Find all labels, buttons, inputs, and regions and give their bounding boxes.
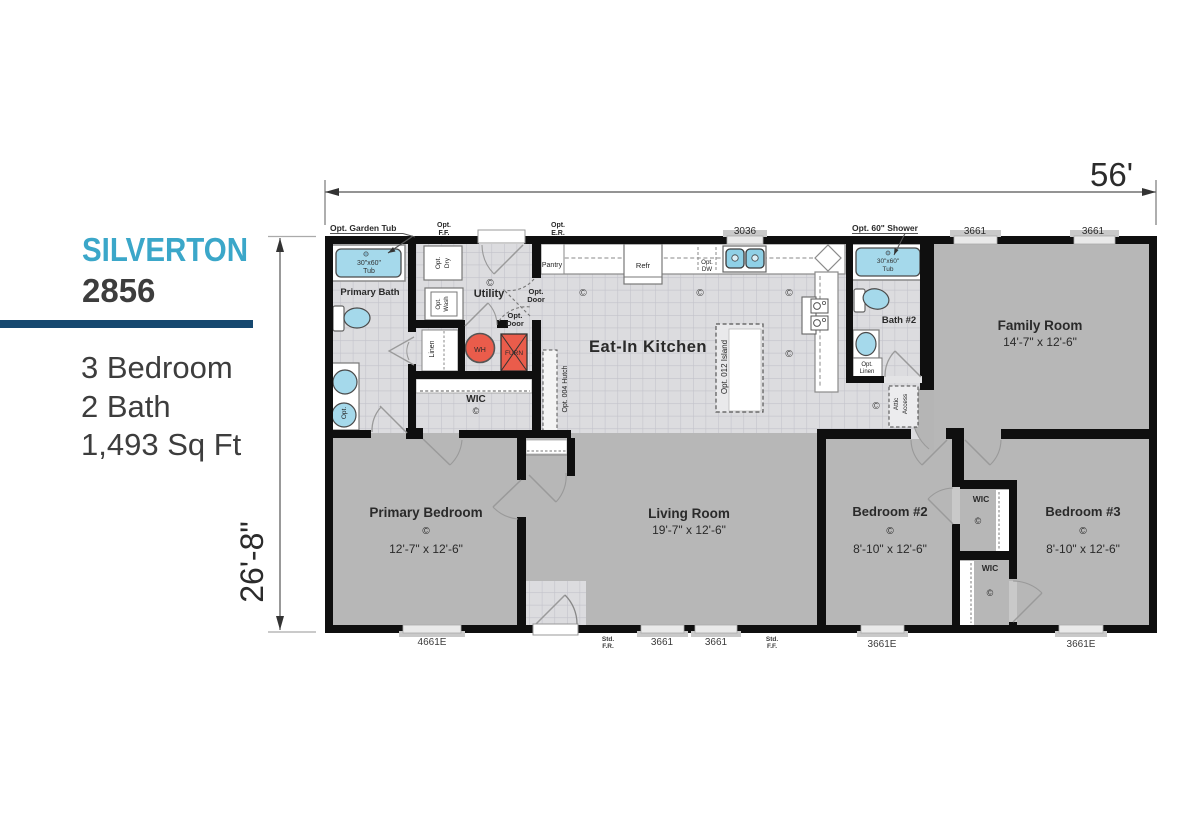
svg-text:3036: 3036 <box>734 226 757 237</box>
svg-text:Opt.: Opt. <box>341 407 348 419</box>
svg-text:8'-10" x 12'-6": 8'-10" x 12'-6" <box>853 542 927 556</box>
svg-text:30"x60": 30"x60" <box>877 258 900 265</box>
svg-text:E.R.: E.R. <box>551 230 565 237</box>
svg-text:Opt.: Opt. <box>435 257 442 269</box>
svg-text:Opt.: Opt. <box>551 222 565 229</box>
svg-text:14'-7" x 12'-6": 14'-7" x 12'-6" <box>1003 335 1077 349</box>
svg-text:Eat-In Kitchen: Eat-In Kitchen <box>589 338 707 356</box>
svg-text:Refr: Refr <box>636 261 651 270</box>
svg-text:Door: Door <box>506 319 524 328</box>
svg-text:Family Room: Family Room <box>998 318 1083 333</box>
svg-text:Utility: Utility <box>474 288 505 300</box>
svg-text:Opt. 60" Shower: Opt. 60" Shower <box>852 223 919 233</box>
svg-text:8'-10" x 12'-6": 8'-10" x 12'-6" <box>1046 542 1120 556</box>
svg-text:©: © <box>422 526 430 537</box>
svg-text:Opt. 012 Island: Opt. 012 Island <box>720 340 729 394</box>
svg-text:30"x60": 30"x60" <box>357 260 382 267</box>
svg-text:Wash: Wash <box>444 296 450 311</box>
svg-text:26'-8": 26'-8" <box>234 521 270 603</box>
svg-text:2856: 2856 <box>82 272 155 309</box>
svg-text:©: © <box>872 401 880 412</box>
svg-text:Opt.: Opt. <box>701 259 713 266</box>
svg-text:F.F.: F.F. <box>767 643 777 650</box>
svg-text:19'-7" x 12'-6": 19'-7" x 12'-6" <box>652 523 726 537</box>
svg-text:Opt. 004 Hutch: Opt. 004 Hutch <box>562 365 569 412</box>
svg-text:Linen: Linen <box>860 369 875 375</box>
svg-text:©: © <box>987 588 994 598</box>
svg-text:Dry: Dry <box>444 257 451 268</box>
svg-text:3661: 3661 <box>1082 226 1105 237</box>
svg-text:Std.: Std. <box>602 636 614 643</box>
svg-text:2 Bath: 2 Bath <box>81 389 171 424</box>
svg-text:56': 56' <box>1090 156 1133 193</box>
svg-text:Pantry: Pantry <box>542 262 563 269</box>
svg-text:Primary Bath: Primary Bath <box>340 287 399 298</box>
svg-text:1,493 Sq Ft: 1,493 Sq Ft <box>81 427 242 462</box>
svg-text:©: © <box>975 516 982 526</box>
svg-text:©: © <box>1079 526 1087 537</box>
svg-text:Opt.: Opt. <box>437 222 451 229</box>
svg-text:©: © <box>696 288 704 299</box>
svg-text:©: © <box>486 278 494 289</box>
svg-text:4661E: 4661E <box>418 637 447 648</box>
svg-text:Bedroom #2: Bedroom #2 <box>852 504 927 519</box>
svg-text:©: © <box>785 288 793 299</box>
svg-text:WIC: WIC <box>982 563 999 573</box>
svg-text:Opt.: Opt. <box>861 362 873 368</box>
svg-text:DW: DW <box>702 266 712 273</box>
svg-text:WIC: WIC <box>466 394 485 405</box>
svg-text:Bath #2: Bath #2 <box>882 315 916 326</box>
svg-text:12'-7" x 12'-6": 12'-7" x 12'-6" <box>389 542 463 556</box>
svg-text:Access: Access <box>902 394 909 414</box>
svg-text:Primary Bedroom: Primary Bedroom <box>369 505 482 520</box>
svg-text:3661: 3661 <box>964 226 987 237</box>
svg-text:©: © <box>473 406 480 416</box>
svg-text:3661E: 3661E <box>868 639 897 650</box>
svg-text:Tub: Tub <box>883 266 894 273</box>
svg-text:Tub: Tub <box>363 268 375 275</box>
svg-text:WIC: WIC <box>973 494 990 504</box>
svg-text:Opt. Garden Tub: Opt. Garden Tub <box>330 223 396 233</box>
svg-text:©: © <box>579 288 587 299</box>
svg-text:FURN: FURN <box>505 350 523 357</box>
svg-text:©: © <box>886 526 894 537</box>
svg-text:F.R.: F.R. <box>602 643 614 650</box>
svg-text:Living Room: Living Room <box>648 506 730 521</box>
svg-text:SILVERTON: SILVERTON <box>82 231 248 268</box>
svg-text:3661E: 3661E <box>1067 639 1096 650</box>
svg-text:WH: WH <box>474 347 486 354</box>
svg-text:Bedroom #3: Bedroom #3 <box>1045 504 1120 519</box>
svg-text:3 Bedroom: 3 Bedroom <box>81 350 233 385</box>
svg-text:Std.: Std. <box>766 636 778 643</box>
svg-text:Linen: Linen <box>429 340 436 357</box>
svg-text:Opt.: Opt. <box>436 298 442 310</box>
svg-text:F.F.: F.F. <box>439 230 450 237</box>
svg-text:3661: 3661 <box>705 637 728 648</box>
svg-text:©: © <box>785 349 793 360</box>
svg-text:3661: 3661 <box>651 637 674 648</box>
svg-text:Attic: Attic <box>893 398 900 410</box>
svg-text:Door: Door <box>527 295 545 304</box>
